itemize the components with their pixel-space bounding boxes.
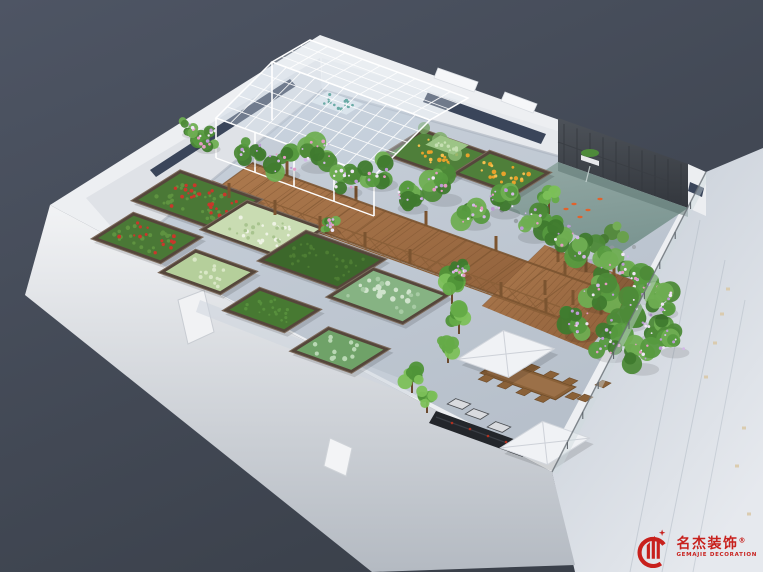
crop-dot <box>435 143 439 147</box>
crop-dot <box>289 255 292 258</box>
crop-dot <box>209 275 213 279</box>
facade-light <box>747 513 751 516</box>
facade-light <box>726 288 730 291</box>
crop-dot <box>361 287 366 292</box>
crop-dot <box>209 206 213 210</box>
crop-dot <box>193 257 197 261</box>
crop-dot <box>349 340 353 344</box>
crop-dot <box>208 191 211 194</box>
crop-dot <box>352 347 357 352</box>
crop-dot <box>260 239 264 243</box>
facade-light <box>735 465 739 468</box>
crop-dot <box>416 292 420 296</box>
pergola-post <box>228 183 231 198</box>
crop-dot <box>242 234 246 238</box>
crop-dot <box>424 155 427 158</box>
crop-dot <box>437 158 442 163</box>
crop-dot <box>132 241 135 244</box>
crop-dot <box>328 335 333 340</box>
pergola-post <box>564 261 567 276</box>
crop-dot <box>429 158 433 162</box>
crop-dot <box>482 161 485 164</box>
koi <box>585 209 590 211</box>
crop-dot <box>315 254 318 257</box>
pergola-post <box>364 232 367 247</box>
crop-dot <box>244 223 248 227</box>
crop-dot <box>492 170 497 175</box>
crop-dot <box>216 285 220 289</box>
crop-dot <box>441 154 444 157</box>
crop-dot <box>399 309 404 314</box>
crop-dot <box>228 227 231 230</box>
crop-dot <box>140 246 143 249</box>
crop-dot <box>303 254 307 258</box>
crop-dot <box>262 308 265 311</box>
registered-mark: ® <box>738 537 745 545</box>
crop-dot <box>271 306 274 309</box>
crop-dot <box>275 226 279 230</box>
crop-dot <box>291 262 294 265</box>
crop-dot <box>336 277 340 281</box>
crop-dot <box>442 159 445 162</box>
crop-dot <box>152 246 155 249</box>
pergola-post <box>409 249 412 264</box>
crop-dot <box>292 254 295 257</box>
crop-dot <box>251 231 255 235</box>
crop-dot <box>349 261 353 265</box>
crop-dot <box>210 202 214 206</box>
crop-dot <box>207 209 210 212</box>
crop-dot <box>522 172 525 175</box>
crop-dot <box>341 259 344 262</box>
crop-dot <box>300 243 302 245</box>
crop-dot <box>174 187 177 190</box>
crop-dot <box>342 356 347 361</box>
crop-dot <box>342 274 345 277</box>
crop-dot <box>355 343 359 347</box>
crop-dot <box>201 210 204 213</box>
crop-dot <box>213 197 217 201</box>
crop-dot <box>514 176 518 180</box>
pergola-post <box>544 280 547 295</box>
crop-dot <box>126 226 130 230</box>
crop-dot <box>455 146 458 149</box>
crop-dot <box>190 189 194 193</box>
crop-dot <box>239 215 243 219</box>
crop-dot <box>265 233 268 236</box>
crop-dot <box>209 194 212 197</box>
brand-name-cn: 名杰装饰® <box>676 537 757 551</box>
crop-dot <box>215 207 218 210</box>
crop-dot <box>180 195 184 199</box>
crop-dot <box>217 210 220 213</box>
crop-dot <box>246 236 250 240</box>
crop-dot <box>412 305 416 309</box>
crop-dot <box>236 232 238 234</box>
crop-dot <box>315 352 319 356</box>
render-canvas <box>0 0 763 572</box>
crop-dot <box>170 194 173 197</box>
crop-dot <box>447 161 450 164</box>
crop-dot <box>273 298 276 301</box>
crop-dot <box>367 278 371 282</box>
crop-dot <box>235 200 238 203</box>
crop-dot <box>279 308 281 310</box>
crop-dot <box>197 192 200 195</box>
crop-dot <box>481 169 483 171</box>
crop-dot <box>200 271 203 274</box>
crop-dot <box>272 235 275 238</box>
brand-watermark: 名杰装饰® GEMAJIE DECORATION <box>636 528 757 568</box>
crop-dot <box>325 251 329 255</box>
crop-dot <box>274 311 277 314</box>
crop-dot <box>145 233 148 236</box>
crop-dot <box>160 239 163 242</box>
crop-dot <box>163 202 166 205</box>
crop-dot <box>332 355 336 359</box>
crop-dot <box>223 193 227 197</box>
crop-dot <box>260 303 262 305</box>
crop-dot <box>361 258 364 261</box>
crop-dot <box>181 207 185 211</box>
crop-dot <box>281 227 284 230</box>
crop-dot <box>204 196 207 199</box>
crop-dot <box>210 189 213 192</box>
crop-dot <box>427 139 429 141</box>
crop-dot <box>213 282 216 285</box>
crop-dot <box>287 234 290 237</box>
crop-dot <box>133 224 137 228</box>
crop-dot <box>526 172 531 177</box>
crop-dot <box>222 268 225 271</box>
crop-dot <box>488 175 492 179</box>
crop-dot <box>284 312 287 315</box>
crop-dot <box>292 246 296 250</box>
crop-dot <box>129 234 133 238</box>
crop-dot <box>153 251 156 254</box>
wall-planter-plants <box>581 149 599 157</box>
pergola-post <box>500 282 503 297</box>
crop-dot <box>167 239 171 243</box>
crop-dot <box>376 292 382 298</box>
crop-dot <box>332 350 336 354</box>
facade-light <box>742 427 746 430</box>
crop-dot <box>510 177 513 180</box>
crop-dot <box>117 235 121 239</box>
crop-dot <box>449 149 451 151</box>
facade-light <box>713 342 717 345</box>
crop-dot <box>376 277 381 282</box>
pergola-post <box>425 211 428 226</box>
crop-dot <box>494 174 497 177</box>
crop-dot <box>139 225 142 228</box>
crop-dot <box>313 342 318 347</box>
crop-dot <box>170 204 174 208</box>
brand-logo-icon <box>636 528 672 568</box>
koi <box>571 203 576 205</box>
rooftop-garden-render: 名杰装饰® GEMAJIE DECORATION <box>0 0 763 572</box>
crop-dot <box>213 264 217 268</box>
crop-dot <box>261 224 264 227</box>
crop-dot <box>350 354 354 358</box>
crop-dot <box>138 235 142 239</box>
crop-dot <box>421 152 424 155</box>
crop-dot <box>244 229 248 233</box>
crop-dot <box>410 294 414 298</box>
crop-dot <box>193 183 197 187</box>
crop-dot <box>390 296 396 302</box>
crop-dot <box>172 234 176 238</box>
facade-light <box>720 313 724 316</box>
crop-dot <box>275 244 278 247</box>
crop-dot <box>344 265 348 269</box>
crop-dot <box>430 161 432 163</box>
koi <box>563 208 568 210</box>
crop-dot <box>379 281 384 286</box>
crop-dot <box>192 195 195 198</box>
crop-dot <box>309 246 313 250</box>
crop-dot <box>307 266 309 268</box>
crop-dot <box>427 150 431 154</box>
crop-dot <box>146 226 148 228</box>
brand-name-en: GEMAJIE DECORATION <box>676 553 757 559</box>
crop-dot <box>190 196 193 199</box>
crop-dot <box>405 298 411 304</box>
crop-dot <box>280 319 283 322</box>
crop-dot <box>348 271 350 273</box>
crop-dot <box>259 311 261 313</box>
crop-dot <box>385 281 390 286</box>
crop-dot <box>276 239 279 242</box>
pergola-post <box>572 290 575 305</box>
crop-dot <box>133 234 135 236</box>
crop-dot <box>438 142 440 144</box>
crop-dot <box>520 177 523 180</box>
crop-dot <box>180 183 184 187</box>
vine-cluster <box>490 183 521 220</box>
crop-dot <box>269 300 273 304</box>
crop-dot <box>212 268 216 272</box>
crop-dot <box>444 141 447 144</box>
crop-dot <box>169 200 173 204</box>
crop-dot <box>209 211 212 214</box>
crop-dot <box>117 230 121 234</box>
crop-dot <box>490 164 493 167</box>
crop-dot <box>286 308 289 311</box>
crop-dot <box>272 222 276 226</box>
crop-dot <box>199 275 203 279</box>
pergola-post <box>274 200 277 215</box>
crop-dot <box>231 202 234 205</box>
crop-dot <box>268 314 270 316</box>
crop-dot <box>395 306 398 309</box>
crop-dot <box>169 246 173 250</box>
crop-dot <box>184 184 187 187</box>
crop-dot <box>501 171 506 176</box>
koi <box>597 198 602 200</box>
crop-dot <box>333 254 335 256</box>
pergola-post <box>495 236 498 251</box>
crop-dot <box>244 307 247 310</box>
crop-dot <box>204 271 208 275</box>
koi <box>577 216 582 218</box>
crop-dot <box>216 277 219 280</box>
crop-dot <box>148 233 152 237</box>
crop-dot <box>154 194 158 198</box>
crop-dot <box>445 159 448 162</box>
crop-dot <box>184 188 188 192</box>
vine-cluster <box>622 335 662 376</box>
crop-dot <box>306 243 309 246</box>
crop-dot <box>206 217 209 220</box>
crop-dot <box>394 288 399 293</box>
crop-dot <box>359 284 363 288</box>
crop-dot <box>186 197 189 200</box>
crop-dot <box>136 221 139 224</box>
crop-dot <box>193 191 196 194</box>
crop-dot <box>297 259 300 262</box>
crop-dot <box>251 225 255 229</box>
crop-dot <box>281 222 283 224</box>
crop-dot <box>400 295 404 299</box>
crop-dot <box>418 144 421 147</box>
crop-dot <box>187 192 189 194</box>
crop-dot <box>170 239 173 242</box>
crop-dot <box>447 144 450 147</box>
crop-dot <box>112 232 116 236</box>
crop-dot <box>288 228 291 231</box>
crop-dot <box>440 143 444 147</box>
crop-dot <box>335 258 338 261</box>
crop-dot <box>245 303 248 306</box>
crop-dot <box>162 243 165 246</box>
crop-dot <box>284 316 287 319</box>
crop-dot <box>257 239 260 242</box>
pergola-post <box>545 298 548 313</box>
crop-dot <box>308 252 311 255</box>
crop-dot <box>335 265 338 268</box>
crop-dot <box>258 300 261 303</box>
crop-dot <box>147 249 151 253</box>
crop-dot <box>511 166 514 169</box>
crop-dot <box>500 180 503 183</box>
crop-dot <box>285 321 287 323</box>
crop-dot <box>257 222 260 225</box>
crop-dot <box>355 265 357 267</box>
crop-dot <box>164 232 167 235</box>
facade-light <box>704 376 708 379</box>
crop-dot <box>466 153 470 157</box>
crop-dot <box>346 294 349 297</box>
